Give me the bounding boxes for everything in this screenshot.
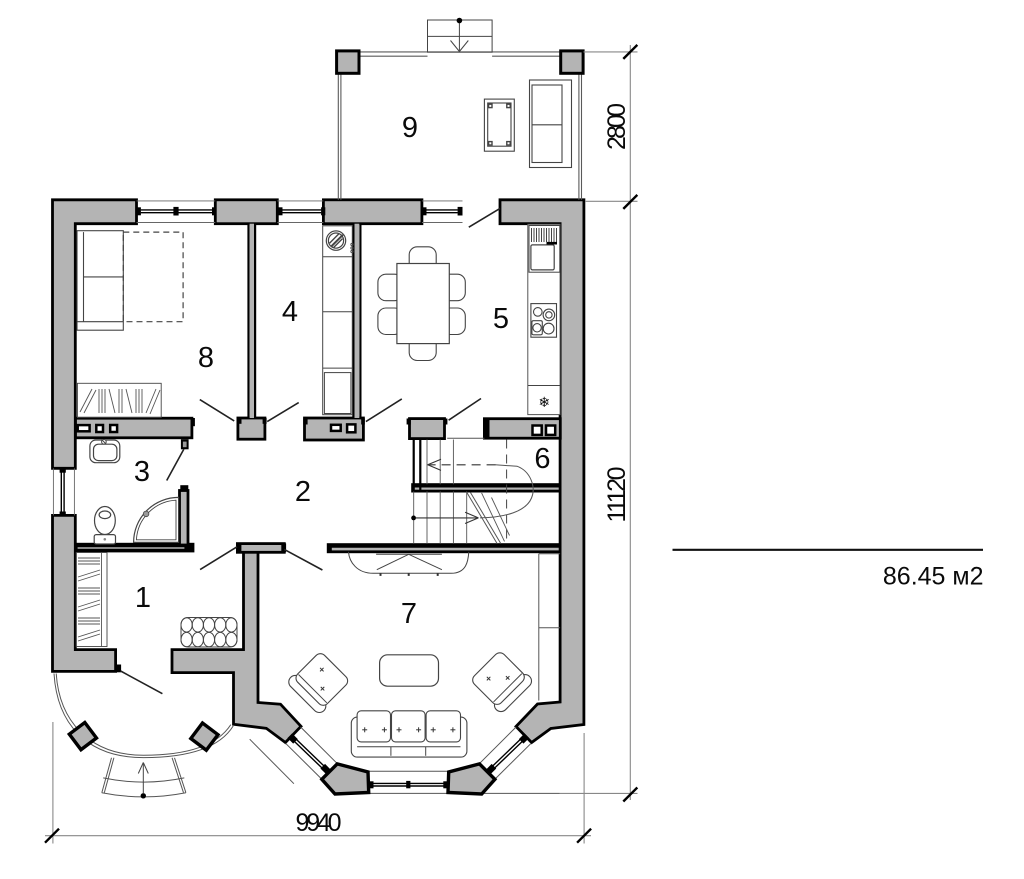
svg-text:7: 7 [401, 598, 417, 630]
svg-text:8: 8 [198, 342, 214, 374]
svg-text:5: 5 [493, 303, 509, 335]
svg-text:2800: 2800 [603, 103, 631, 150]
svg-text:3: 3 [134, 456, 150, 488]
svg-text:6: 6 [534, 443, 550, 475]
svg-text:9940: 9940 [296, 809, 342, 837]
svg-text:4: 4 [282, 296, 298, 328]
svg-text:1: 1 [135, 582, 151, 614]
svg-text:❄: ❄ [538, 394, 550, 410]
svg-text:11120: 11120 [603, 467, 631, 523]
svg-text:9: 9 [402, 112, 418, 144]
svg-text:86.45 м2: 86.45 м2 [883, 563, 984, 591]
svg-text:2: 2 [295, 476, 311, 508]
